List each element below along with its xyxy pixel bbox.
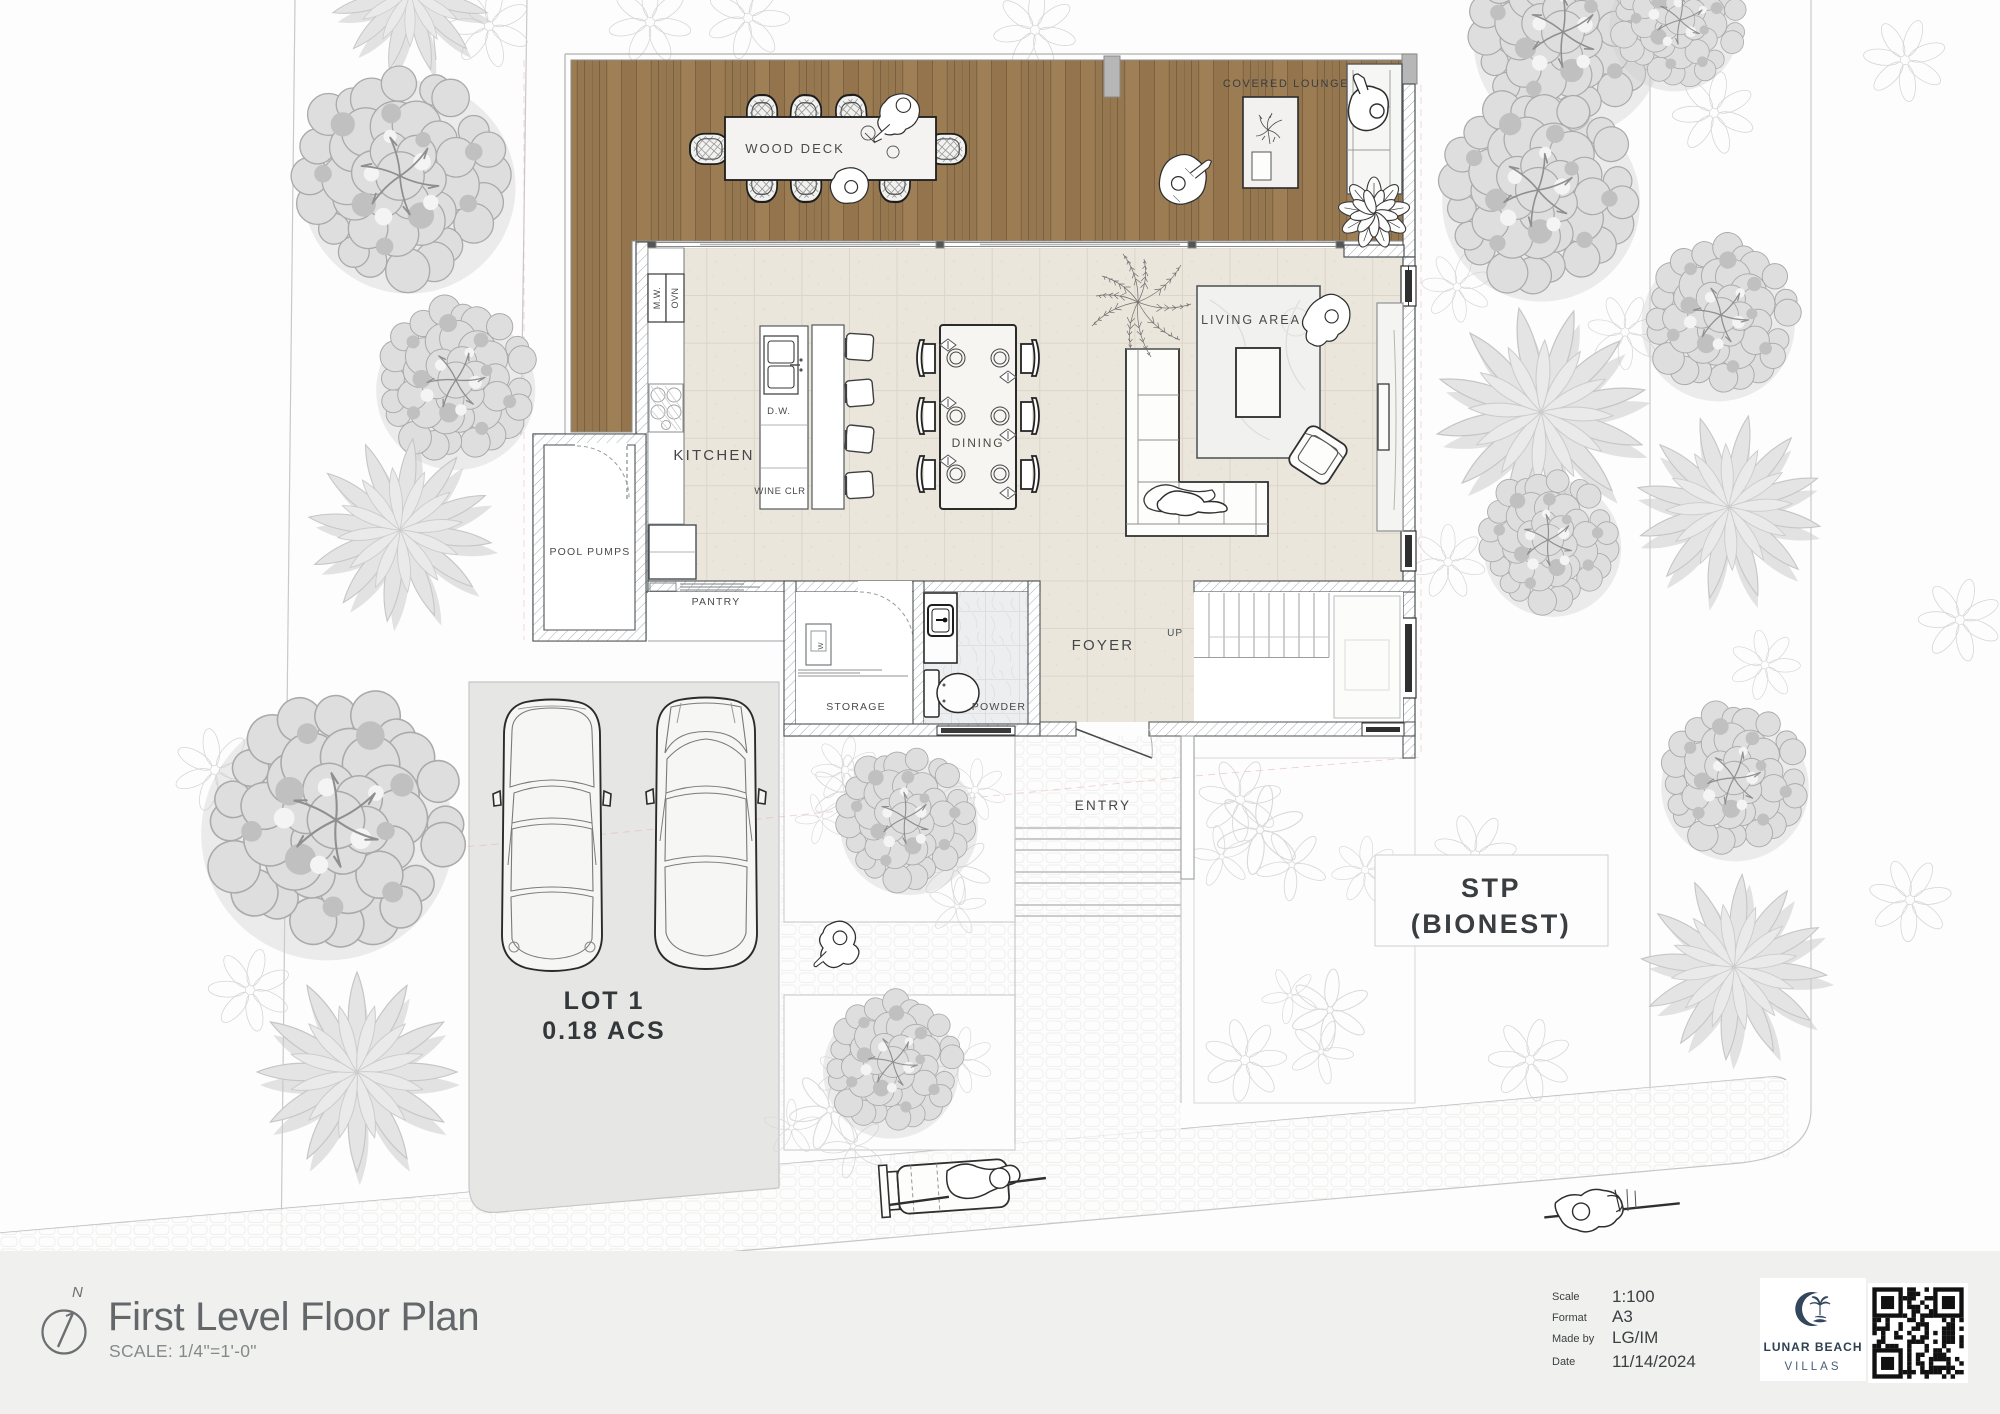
- svg-text:LG/IM: LG/IM: [1612, 1328, 1658, 1347]
- svg-text:VILLAS: VILLAS: [1785, 1361, 1842, 1373]
- svg-text:First Level Floor Plan: First Level Floor Plan: [108, 1295, 479, 1339]
- svg-text:Date: Date: [1552, 1356, 1575, 1368]
- svg-text:DINING: DINING: [952, 436, 1005, 450]
- svg-text:M.W.: M.W.: [652, 287, 662, 310]
- svg-text:LIVING AREA: LIVING AREA: [1201, 313, 1301, 327]
- svg-text:POWDER: POWDER: [972, 701, 1026, 713]
- svg-text:OVN: OVN: [670, 287, 680, 308]
- svg-text:STORAGE: STORAGE: [826, 701, 886, 713]
- svg-text:WOOD DECK: WOOD DECK: [745, 141, 845, 156]
- svg-text:PANTRY: PANTRY: [692, 596, 741, 608]
- svg-text:1:100: 1:100: [1612, 1287, 1655, 1306]
- svg-text:W: W: [816, 642, 825, 650]
- svg-text:D.W.: D.W.: [767, 406, 791, 417]
- svg-text:STP: STP: [1461, 873, 1521, 903]
- svg-text:LUNAR BEACH: LUNAR BEACH: [1764, 1340, 1863, 1354]
- svg-text:Made by: Made by: [1552, 1333, 1595, 1345]
- svg-text:0.18 ACS: 0.18 ACS: [542, 1017, 665, 1045]
- svg-text:(BIONEST): (BIONEST): [1411, 909, 1572, 939]
- svg-text:WINE CLR: WINE CLR: [754, 486, 805, 497]
- svg-text:11/14/2024: 11/14/2024: [1612, 1352, 1696, 1371]
- svg-text:LOT 1: LOT 1: [564, 987, 645, 1015]
- svg-text:Format: Format: [1552, 1312, 1587, 1324]
- svg-text:N: N: [72, 1284, 83, 1301]
- svg-text:KITCHEN: KITCHEN: [673, 447, 754, 464]
- svg-text:FOYER: FOYER: [1072, 637, 1135, 654]
- svg-text:Scale: Scale: [1552, 1291, 1580, 1303]
- svg-text:SCALE: 1/4"=1'-0": SCALE: 1/4"=1'-0": [109, 1341, 257, 1361]
- svg-text:ENTRY: ENTRY: [1075, 798, 1132, 813]
- svg-text:UP: UP: [1167, 628, 1183, 639]
- svg-text:A3: A3: [1612, 1307, 1633, 1326]
- svg-text:POOL PUMPS: POOL PUMPS: [549, 546, 630, 558]
- svg-text:COVERED LOUNGE: COVERED LOUNGE: [1223, 78, 1349, 90]
